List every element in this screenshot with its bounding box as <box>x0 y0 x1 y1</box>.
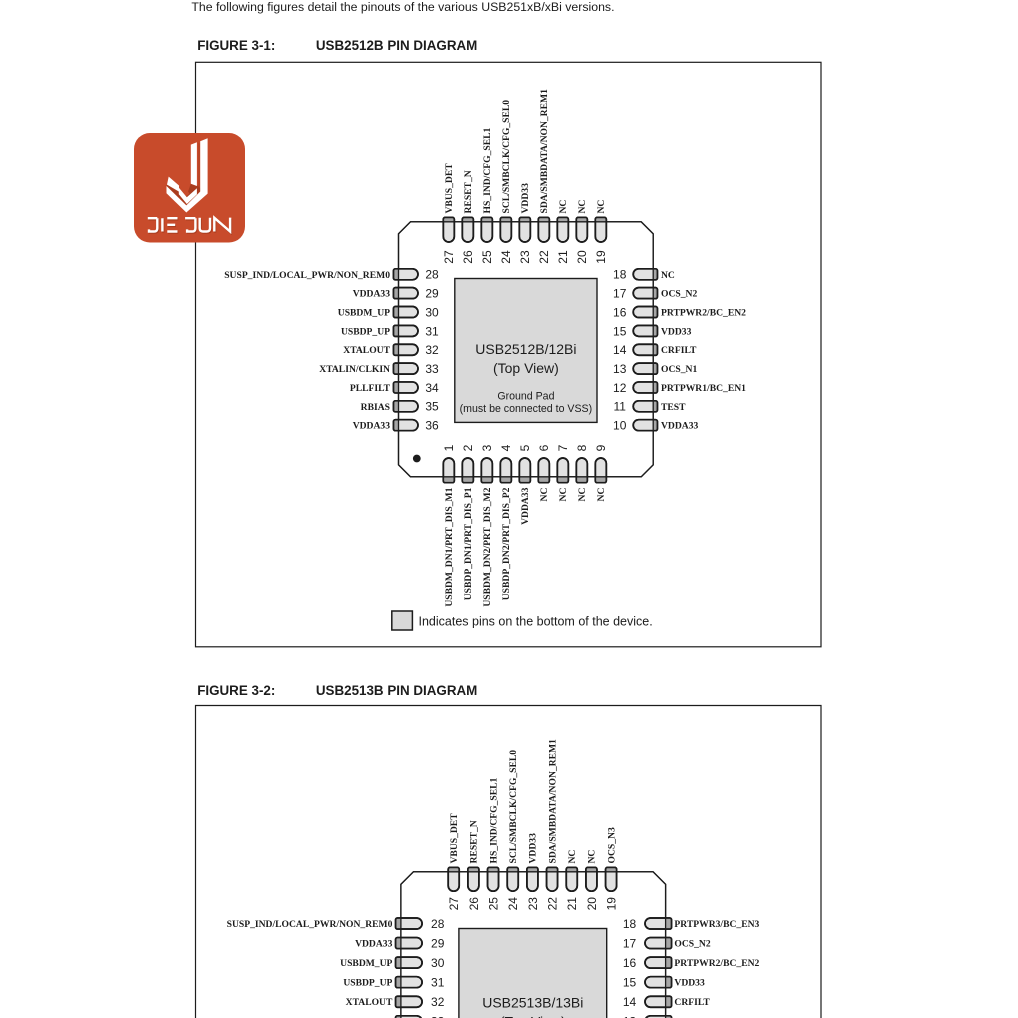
svg-text:20: 20 <box>585 897 599 911</box>
svg-text:VDDA33: VDDA33 <box>520 487 531 525</box>
svg-text:29: 29 <box>425 287 439 301</box>
svg-text:PRTPWR1/BC_EN1: PRTPWR1/BC_EN1 <box>661 383 746 394</box>
svg-text:HS_IND/CFG_SEL1: HS_IND/CFG_SEL1 <box>482 127 493 213</box>
svg-text:OCS_N2: OCS_N2 <box>661 289 697 300</box>
svg-text:VDDA33: VDDA33 <box>353 289 391 300</box>
svg-text:SDA/SMBDATA/NON_REM1: SDA/SMBDATA/NON_REM1 <box>547 739 558 864</box>
svg-text:VDDA33: VDDA33 <box>353 421 391 432</box>
svg-text:18: 18 <box>623 917 637 931</box>
svg-text:26: 26 <box>467 897 481 911</box>
svg-text:CRFILT: CRFILT <box>674 997 710 1008</box>
svg-text:OCS_N3: OCS_N3 <box>606 827 617 863</box>
svg-text:30: 30 <box>425 305 439 319</box>
svg-text:23: 23 <box>526 897 540 911</box>
svg-text:USBDM_DN2/PRT_DIS_M2: USBDM_DN2/PRT_DIS_M2 <box>482 487 493 606</box>
svg-text:Indicates pins on the bottom o: Indicates pins on the bottom of the devi… <box>419 614 653 628</box>
svg-text:8: 8 <box>575 444 589 451</box>
svg-text:20: 20 <box>575 250 589 264</box>
svg-text:USBDM_UP: USBDM_UP <box>338 308 390 319</box>
svg-text:27: 27 <box>447 897 461 911</box>
svg-text:32: 32 <box>431 995 445 1009</box>
svg-text:VDD33: VDD33 <box>674 978 705 989</box>
svg-text:3: 3 <box>480 444 494 451</box>
svg-text:2: 2 <box>461 444 475 451</box>
svg-text:24: 24 <box>506 897 520 911</box>
svg-text:14: 14 <box>623 995 637 1009</box>
svg-text:34: 34 <box>425 381 439 395</box>
svg-text:(Top View): (Top View) <box>493 360 559 376</box>
svg-text:SCL/SMBCLK/CFG_SEL0: SCL/SMBCLK/CFG_SEL0 <box>501 100 512 214</box>
svg-text:7: 7 <box>556 444 570 451</box>
svg-text:RESET_N: RESET_N <box>463 170 474 213</box>
svg-text:25: 25 <box>480 250 494 264</box>
svg-text:10: 10 <box>613 419 627 433</box>
svg-text:PLLFILT: PLLFILT <box>350 383 391 394</box>
svg-text:16: 16 <box>613 305 627 319</box>
svg-text:HS_IND/CFG_SEL1: HS_IND/CFG_SEL1 <box>488 777 499 863</box>
svg-text:(must be connected to VSS): (must be connected to VSS) <box>460 403 593 415</box>
svg-text:TEST: TEST <box>661 402 686 413</box>
svg-text:PRTPWR3/BC_EN3: PRTPWR3/BC_EN3 <box>674 919 759 930</box>
svg-text:17: 17 <box>613 287 627 301</box>
svg-text:VBUS_DET: VBUS_DET <box>444 163 455 214</box>
svg-text:21: 21 <box>565 897 579 911</box>
svg-text:USBDP_UP: USBDP_UP <box>341 326 390 337</box>
svg-text:SCL/SMBCLK/CFG_SEL0: SCL/SMBCLK/CFG_SEL0 <box>508 750 519 864</box>
svg-text:4: 4 <box>499 444 513 451</box>
svg-text:NC: NC <box>596 488 607 502</box>
svg-text:9: 9 <box>594 444 608 451</box>
svg-text:1: 1 <box>442 444 456 451</box>
svg-text:USBDM_DN1/PRT_DIS_M1: USBDM_DN1/PRT_DIS_M1 <box>444 487 455 606</box>
svg-text:SUSP_IND/LOCAL_PWR/NON_REM0: SUSP_IND/LOCAL_PWR/NON_REM0 <box>224 270 390 281</box>
svg-text:13: 13 <box>613 362 627 376</box>
svg-text:12: 12 <box>613 381 627 395</box>
svg-text:27: 27 <box>442 250 456 264</box>
svg-text:NC: NC <box>661 270 675 281</box>
svg-text:NC: NC <box>558 488 569 502</box>
svg-text:19: 19 <box>605 897 619 911</box>
svg-text:USBDP_DN2/PRT_DIS_P2: USBDP_DN2/PRT_DIS_P2 <box>501 487 512 600</box>
svg-text:31: 31 <box>431 976 445 990</box>
svg-text:22: 22 <box>537 250 551 264</box>
svg-text:28: 28 <box>425 268 439 282</box>
svg-text:29: 29 <box>431 936 445 950</box>
svg-text:Ground Pad: Ground Pad <box>497 391 554 403</box>
svg-text:15: 15 <box>613 324 627 338</box>
svg-text:PRTPWR2/BC_EN2: PRTPWR2/BC_EN2 <box>674 958 759 969</box>
svg-text:SUSP_IND/LOCAL_PWR/NON_REM0: SUSP_IND/LOCAL_PWR/NON_REM0 <box>227 919 393 930</box>
svg-text:XTALOUT: XTALOUT <box>346 997 393 1008</box>
svg-text:VBUS_DET: VBUS_DET <box>449 813 460 864</box>
svg-text:6: 6 <box>537 444 551 451</box>
svg-text:32: 32 <box>425 343 439 357</box>
svg-text:26: 26 <box>461 250 475 264</box>
svg-text:VDD33: VDD33 <box>520 183 531 214</box>
svg-text:RESET_N: RESET_N <box>469 820 480 863</box>
svg-text:5: 5 <box>518 444 532 451</box>
svg-text:VDDA33: VDDA33 <box>355 939 393 950</box>
svg-text:24: 24 <box>499 250 513 264</box>
svg-text:SDA/SMBDATA/NON_REM1: SDA/SMBDATA/NON_REM1 <box>539 89 550 214</box>
svg-text:NC: NC <box>596 200 607 214</box>
svg-text:NC: NC <box>567 850 578 864</box>
svg-text:XTALIN/CLKIN: XTALIN/CLKIN <box>319 364 390 375</box>
svg-text:XTALOUT: XTALOUT <box>343 345 390 356</box>
svg-text:19: 19 <box>594 250 608 264</box>
svg-text:OCS_N1: OCS_N1 <box>661 364 697 375</box>
svg-text:33: 33 <box>425 362 439 376</box>
svg-text:USB2512B/12Bi: USB2512B/12Bi <box>475 341 576 357</box>
svg-text:28: 28 <box>431 917 445 931</box>
svg-text:USBDM_UP: USBDM_UP <box>340 958 392 969</box>
svg-text:16: 16 <box>623 956 637 970</box>
svg-text:USBDP_UP: USBDP_UP <box>343 978 392 989</box>
svg-text:VDD33: VDD33 <box>661 326 692 337</box>
svg-text:18: 18 <box>613 268 627 282</box>
svg-text:NC: NC <box>587 850 598 864</box>
svg-text:17: 17 <box>623 936 637 950</box>
svg-text:11: 11 <box>613 400 626 414</box>
svg-text:23: 23 <box>518 250 532 264</box>
svg-text:NC: NC <box>558 200 569 214</box>
svg-text:25: 25 <box>486 897 500 911</box>
svg-text:31: 31 <box>425 324 439 338</box>
svg-text:USBDP_DN1/PRT_DIS_P1: USBDP_DN1/PRT_DIS_P1 <box>463 487 474 600</box>
svg-text:OCS_N2: OCS_N2 <box>674 939 710 950</box>
svg-text:VDDA33: VDDA33 <box>661 421 699 432</box>
svg-text:NC: NC <box>577 488 588 502</box>
svg-text:RBIAS: RBIAS <box>361 402 390 413</box>
svg-text:NC: NC <box>539 488 550 502</box>
svg-text:PRTPWR2/BC_EN2: PRTPWR2/BC_EN2 <box>661 308 746 319</box>
svg-text:35: 35 <box>425 400 439 414</box>
svg-text:30: 30 <box>431 956 445 970</box>
svg-text:CRFILT: CRFILT <box>661 345 697 356</box>
svg-text:36: 36 <box>425 419 439 433</box>
svg-text:USB2513B/13Bi: USB2513B/13Bi <box>482 995 583 1011</box>
svg-text:15: 15 <box>623 976 637 990</box>
svg-text:21: 21 <box>556 250 570 264</box>
svg-text:22: 22 <box>545 897 559 911</box>
svg-text:NC: NC <box>577 200 588 214</box>
svg-text:VDD33: VDD33 <box>528 833 539 864</box>
svg-text:14: 14 <box>613 343 627 357</box>
svg-text:(Top View): (Top View) <box>500 1014 566 1018</box>
